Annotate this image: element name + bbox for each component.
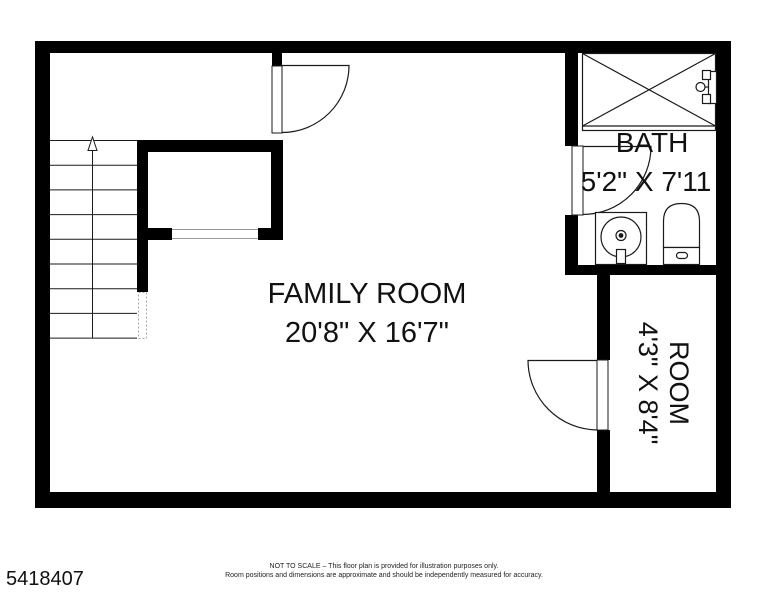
stair-treads <box>50 141 137 339</box>
landing-door-swing-icon <box>282 66 349 133</box>
interior-walls <box>137 53 716 492</box>
room-door-swing-icon <box>528 361 597 431</box>
closet-bottom-wall-left <box>148 228 172 240</box>
closet-bottom-wall-right <box>258 228 283 240</box>
wall-left <box>35 41 50 507</box>
stairs <box>50 137 147 339</box>
room-door <box>528 360 608 430</box>
shower-tub-icon <box>583 54 716 131</box>
stairs-closet-wall <box>137 140 148 292</box>
room-left-wall-upper <box>597 275 610 360</box>
tub-faucet-icon <box>696 71 717 104</box>
landing-door-leaf <box>272 66 282 133</box>
closet-opening <box>172 230 258 239</box>
landing-door-stub <box>272 53 282 66</box>
wall-bottom <box>35 492 731 508</box>
room-door-leaf <box>597 360 608 430</box>
disclaimer: NOT TO SCALE – This floor plan is provid… <box>0 562 768 580</box>
closet-right-wall <box>271 140 283 240</box>
landing-door <box>272 66 349 134</box>
wall-top <box>35 41 731 53</box>
bath-dimensions: 5'2" X 7'11 <box>566 167 726 196</box>
bath-label: BATH <box>572 128 732 157</box>
disclaimer-line-1: NOT TO SCALE – This floor plan is provid… <box>0 562 768 571</box>
family-room-dimensions: 20'8" X 16'7" <box>217 318 517 348</box>
room-dimensions: 4'3" X 8'4" <box>632 253 663 513</box>
floor-plan-page: FAMILY ROOM 20'8" X 16'7" BATH 5'2" X 7'… <box>0 0 768 594</box>
disclaimer-line-2: Room positions and dimensions are approx… <box>0 571 768 580</box>
room-label: ROOM <box>663 253 694 513</box>
room-left-wall-lower <box>597 430 610 492</box>
stair-rail <box>139 293 147 339</box>
family-room-label: FAMILY ROOM <box>217 279 517 309</box>
wall-right <box>716 41 731 508</box>
closet-top-wall <box>137 140 283 152</box>
room-label-block: ROOM 4'3" X 8'4" <box>632 253 694 513</box>
stairs-up-arrow-icon <box>88 137 97 151</box>
